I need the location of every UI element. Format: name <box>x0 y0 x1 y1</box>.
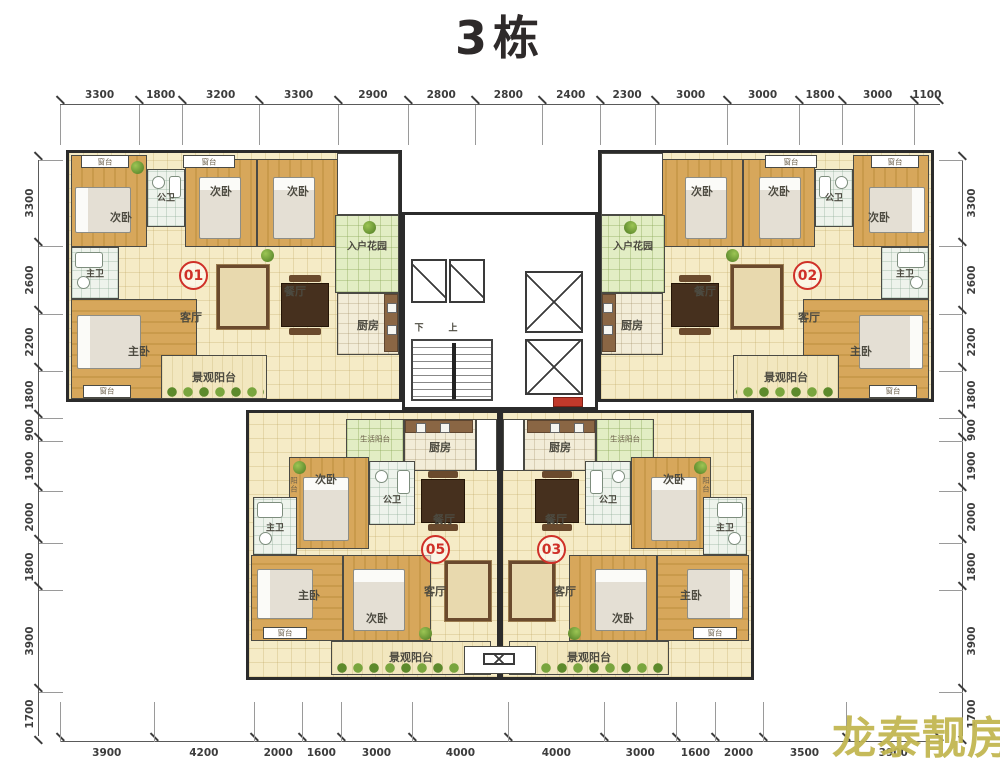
room-kitchen <box>337 293 399 355</box>
dimension-value: 3900 <box>966 626 978 655</box>
room-kitchen <box>601 293 663 355</box>
room-view-balcony <box>733 355 839 399</box>
room-master-bath <box>703 497 747 555</box>
room-master-bath <box>881 247 929 299</box>
window-bay <box>869 385 917 398</box>
dimension-value: 1700 <box>24 699 36 728</box>
dimension-value: 1800 <box>146 89 175 101</box>
corridor <box>503 419 524 471</box>
bed <box>685 177 727 239</box>
balcony-junction-box <box>464 646 536 674</box>
stairs-down-label: 下 <box>414 321 423 334</box>
dining-table <box>535 479 579 523</box>
unit-01: 窗台 窗台 窗台 次卧 公卫 次卧 次卧 主卫 主卧 客厅 餐厅 厨房 入户花园… <box>66 150 402 402</box>
living-room-rug <box>217 265 269 329</box>
dimension-chain-bottom: 3900420020001600300040004000300016002000… <box>60 741 940 742</box>
unit-03-geometry <box>503 413 751 677</box>
dining-table <box>671 283 719 327</box>
dimension-value: 2000 <box>724 747 753 759</box>
dimension-value: 3900 <box>24 626 36 655</box>
dimension-value: 3300 <box>24 188 36 217</box>
dimension-value: 2200 <box>966 328 978 357</box>
dimension-value: 900 <box>24 419 36 441</box>
dimension-chain-left: 330026002200180090019002000180039001700 <box>38 160 39 736</box>
elevator <box>525 339 583 395</box>
bed <box>651 477 697 541</box>
dimension-value: 3500 <box>790 747 819 759</box>
plant <box>624 221 637 234</box>
window-bay <box>81 155 129 168</box>
room-master-bath <box>71 247 119 299</box>
page-title: 3栋 <box>0 2 1000 68</box>
dimension-value: 1800 <box>24 552 36 581</box>
dimension-value: 4000 <box>446 747 475 759</box>
shaft <box>601 153 663 215</box>
dimension-value: 3000 <box>748 89 777 101</box>
bed <box>353 569 405 631</box>
shaft-box <box>411 259 447 303</box>
floorplan-canvas: 3栋 3300180032003300290028002800240023003… <box>0 0 1000 764</box>
staircase <box>411 339 493 401</box>
dimension-chain-top: 3300180032003300290028002800240023003000… <box>60 104 940 105</box>
room-master-bath <box>253 497 297 555</box>
plant <box>363 221 376 234</box>
window-bay <box>693 627 737 639</box>
bed <box>759 177 801 239</box>
bed <box>199 177 241 239</box>
dimension-value: 2800 <box>494 89 523 101</box>
dimension-value: 2000 <box>966 502 978 531</box>
toilet <box>77 276 90 289</box>
bed <box>303 477 349 541</box>
dimension-value: 2000 <box>264 747 293 759</box>
bed <box>595 569 647 631</box>
building-core: 下 上 <box>402 212 598 410</box>
unit-02: 窗台 窗台 窗台 次卧 公卫 次卧 次卧 主卫 主卧 客厅 餐厅 厨房 入户花园… <box>598 150 934 402</box>
dimension-value: 4000 <box>542 747 571 759</box>
window-bay <box>871 155 919 168</box>
window-bay <box>183 155 235 168</box>
living-room-rug <box>509 561 555 621</box>
stairs-up-label: 上 <box>448 321 457 334</box>
dimension-value: 1800 <box>966 380 978 409</box>
dimension-value: 2600 <box>966 265 978 294</box>
dimension-value: 2400 <box>556 89 585 101</box>
dimension-value: 2200 <box>24 328 36 357</box>
dimension-value: 3000 <box>362 747 391 759</box>
dimension-value: 1600 <box>307 747 336 759</box>
unit-01-geometry <box>69 153 399 399</box>
bed <box>75 187 131 233</box>
dimension-value: 1900 <box>24 452 36 481</box>
room-public-bath <box>815 169 853 227</box>
dimension-value: 3300 <box>284 89 313 101</box>
bed <box>257 569 313 619</box>
entrance-marker <box>553 397 583 407</box>
plant <box>726 249 739 262</box>
unit-03: 生活阳台 厨房 次卧 阳台 公卫 主卫 主卧 次卧 餐厅 客厅 景观阳台 窗台 … <box>500 410 754 680</box>
bed <box>273 177 315 239</box>
dimension-value: 1900 <box>966 452 978 481</box>
dimension-value: 1800 <box>966 552 978 581</box>
dimension-value: 3000 <box>626 747 655 759</box>
dimension-value: 3200 <box>206 89 235 101</box>
dining-table <box>421 479 465 523</box>
dimension-value: 2000 <box>24 502 36 531</box>
stair-rail <box>452 343 456 399</box>
corridor <box>476 419 497 471</box>
window-bay <box>765 155 817 168</box>
plant <box>261 249 274 262</box>
shaft <box>337 153 399 215</box>
plant <box>419 627 432 640</box>
dimension-value: 2600 <box>24 265 36 294</box>
room-public-bath <box>147 169 185 227</box>
dimension-value: 1100 <box>912 89 941 101</box>
bed <box>869 187 925 233</box>
dimension-value: 3000 <box>863 89 892 101</box>
dimension-value: 3300 <box>966 188 978 217</box>
room-public-bath <box>585 461 631 525</box>
shaft-box <box>449 259 485 303</box>
room-public-bath <box>369 461 415 525</box>
plant <box>293 461 306 474</box>
watermark: 龙泰靓房 <box>832 702 1000 764</box>
elevator <box>525 271 583 333</box>
dining-table <box>281 283 329 327</box>
living-room-rug <box>731 265 783 329</box>
dimension-value: 1600 <box>681 747 710 759</box>
balcony-plants <box>164 387 264 397</box>
toilet <box>152 176 165 189</box>
plant <box>568 627 581 640</box>
bed <box>77 315 141 369</box>
unit-05: 生活阳台 厨房 次卧 阳台 公卫 主卫 主卧 次卧 餐厅 客厅 景观阳台 窗台 … <box>246 410 500 680</box>
dimension-chain-right: 330026002200180090019002000180039001700 <box>962 160 963 736</box>
dimension-value: 900 <box>966 419 978 441</box>
dimension-value: 3300 <box>85 89 114 101</box>
dimension-value: 2300 <box>612 89 641 101</box>
dimension-value: 2900 <box>358 89 387 101</box>
dimension-value: 3000 <box>676 89 705 101</box>
unit-05-geometry <box>249 413 497 677</box>
unit-02-geometry <box>601 153 931 399</box>
plant <box>694 461 707 474</box>
room-view-balcony <box>161 355 267 399</box>
dimension-value: 1800 <box>805 89 834 101</box>
window-bay <box>263 627 307 639</box>
bathtub <box>75 252 103 268</box>
dimension-value: 4200 <box>189 747 218 759</box>
bed <box>859 315 923 369</box>
living-room-rug <box>445 561 491 621</box>
bed <box>687 569 743 619</box>
dimension-value: 1800 <box>24 380 36 409</box>
dimension-value: 3900 <box>92 747 121 759</box>
window-bay <box>83 385 131 398</box>
sink <box>169 176 181 198</box>
kitchen-counter <box>384 294 398 352</box>
junction-window <box>483 653 515 665</box>
dimension-value: 2800 <box>427 89 456 101</box>
plant <box>131 161 144 174</box>
